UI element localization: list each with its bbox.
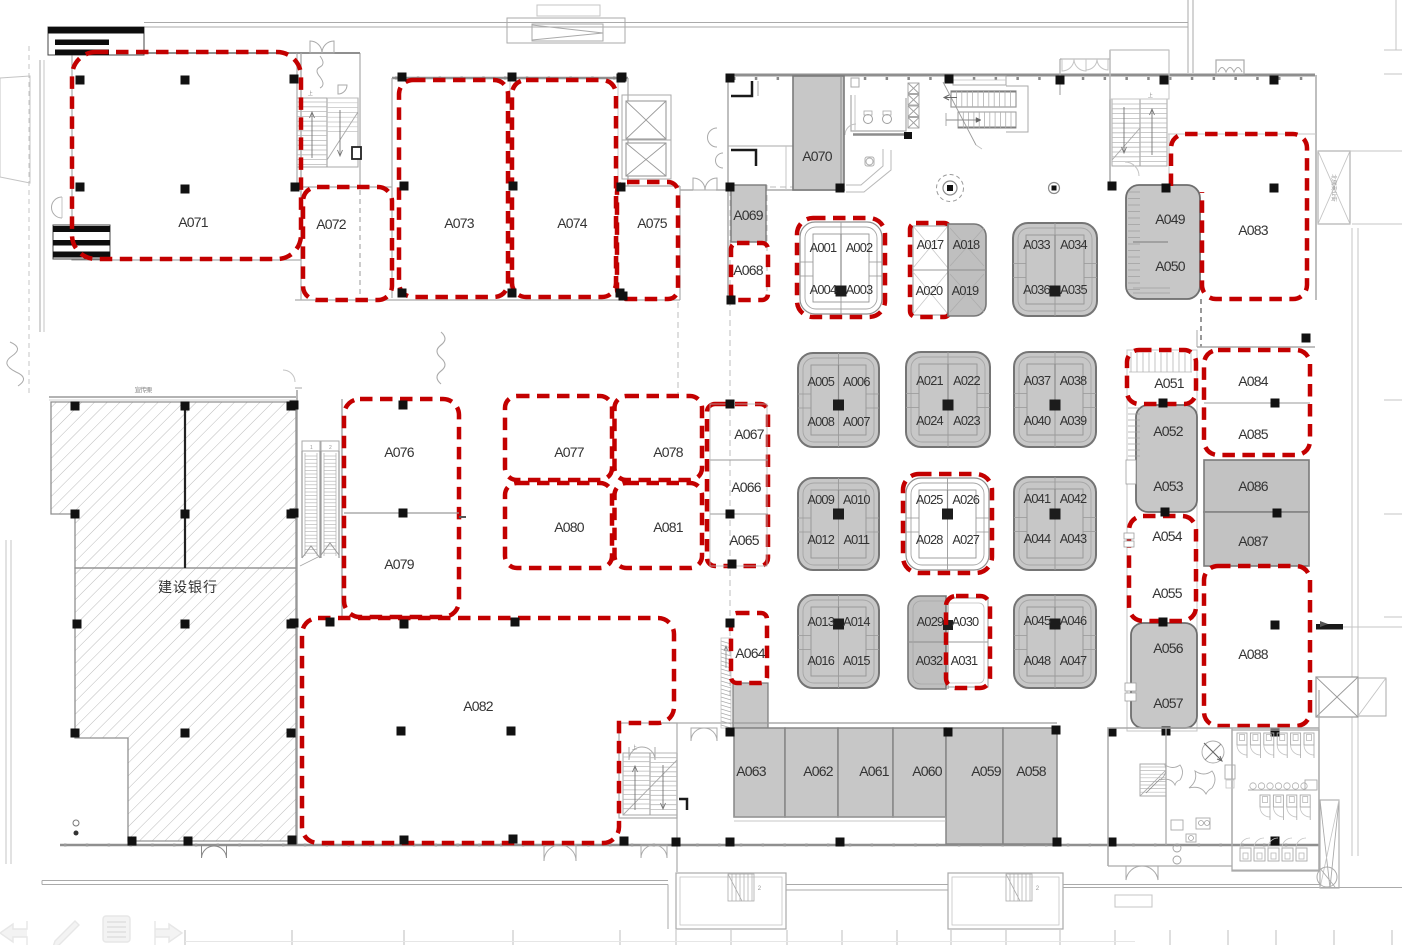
svg-text:A001: A001 <box>810 240 837 255</box>
svg-text:A035: A035 <box>1060 282 1087 297</box>
svg-text:A021: A021 <box>916 373 943 388</box>
svg-text:A027: A027 <box>952 532 979 547</box>
svg-text:A070: A070 <box>802 148 833 164</box>
svg-text:A033: A033 <box>1023 237 1050 252</box>
svg-text:A010: A010 <box>843 492 870 507</box>
svg-text:A072: A072 <box>316 216 347 232</box>
svg-text:A053: A053 <box>1153 478 1184 494</box>
svg-text:A023: A023 <box>953 413 980 428</box>
svg-text:A009: A009 <box>807 492 834 507</box>
svg-text:A020: A020 <box>916 283 943 298</box>
svg-text:A004: A004 <box>810 282 837 297</box>
svg-text:建设银行: 建设银行 <box>158 579 218 595</box>
svg-text:A060: A060 <box>912 763 943 779</box>
svg-text:A087: A087 <box>1238 533 1269 549</box>
svg-text:A046: A046 <box>1060 613 1087 628</box>
svg-text:A075: A075 <box>637 215 668 231</box>
svg-text:A081: A081 <box>653 519 684 535</box>
svg-text:A041: A041 <box>1024 491 1051 506</box>
svg-text:A030: A030 <box>952 614 979 629</box>
svg-text:北侧商业街: 北侧商业街 <box>1330 174 1338 202</box>
svg-text:A079: A079 <box>384 556 415 572</box>
svg-text:A040: A040 <box>1024 413 1051 428</box>
svg-text:A024: A024 <box>916 413 943 428</box>
svg-text:A015: A015 <box>843 653 870 668</box>
svg-text:A059: A059 <box>971 763 1002 779</box>
svg-text:A066: A066 <box>731 479 762 495</box>
svg-text:A054: A054 <box>1152 528 1183 544</box>
svg-text:A017: A017 <box>917 237 944 252</box>
svg-text:A013: A013 <box>807 614 834 629</box>
svg-text:A058: A058 <box>1016 763 1047 779</box>
svg-text:A063: A063 <box>736 763 767 779</box>
svg-text:A051: A051 <box>1154 375 1185 391</box>
svg-text:A074: A074 <box>557 215 588 231</box>
svg-text:A043: A043 <box>1060 531 1087 546</box>
svg-text:A088: A088 <box>1238 646 1269 662</box>
svg-text:A036: A036 <box>1023 282 1050 297</box>
svg-text:A048: A048 <box>1024 653 1051 668</box>
svg-text:A056: A056 <box>1153 640 1184 656</box>
svg-text:A057: A057 <box>1153 695 1184 711</box>
svg-text:A042: A042 <box>1060 491 1087 506</box>
svg-text:A034: A034 <box>1060 237 1087 252</box>
svg-text:A016: A016 <box>807 653 834 668</box>
svg-text:A037: A037 <box>1024 373 1051 388</box>
svg-text:A078: A078 <box>653 444 684 460</box>
svg-text:A062: A062 <box>803 763 834 779</box>
svg-text:A065: A065 <box>729 532 760 548</box>
svg-text:A045: A045 <box>1024 613 1051 628</box>
svg-text:A028: A028 <box>916 532 943 547</box>
svg-text:A061: A061 <box>859 763 890 779</box>
svg-text:A084: A084 <box>1238 373 1269 389</box>
svg-text:A055: A055 <box>1152 585 1183 601</box>
svg-text:A026: A026 <box>952 492 979 507</box>
svg-text:A032: A032 <box>916 653 943 668</box>
svg-text:A047: A047 <box>1060 653 1087 668</box>
svg-text:A029: A029 <box>917 614 944 629</box>
svg-text:A031: A031 <box>951 653 978 668</box>
svg-text:A049: A049 <box>1155 211 1186 227</box>
svg-text:A071: A071 <box>178 214 209 230</box>
svg-text:A025: A025 <box>916 492 943 507</box>
svg-text:A007: A007 <box>843 414 870 429</box>
svg-text:A019: A019 <box>952 283 979 298</box>
svg-text:A018: A018 <box>953 237 980 252</box>
svg-text:A068: A068 <box>733 262 764 278</box>
svg-text:A077: A077 <box>554 444 585 460</box>
svg-text:A086: A086 <box>1238 478 1269 494</box>
svg-text:A011: A011 <box>843 532 869 547</box>
svg-text:A044: A044 <box>1024 531 1051 546</box>
svg-text:A014: A014 <box>843 614 870 629</box>
svg-text:A038: A038 <box>1060 373 1087 388</box>
svg-text:A064: A064 <box>735 645 766 661</box>
svg-text:A069: A069 <box>733 207 764 223</box>
svg-text:A067: A067 <box>734 426 765 442</box>
svg-text:A022: A022 <box>953 373 980 388</box>
svg-text:A050: A050 <box>1155 258 1186 274</box>
svg-text:A073: A073 <box>444 215 475 231</box>
svg-text:A039: A039 <box>1060 413 1087 428</box>
svg-text:A006: A006 <box>843 374 870 389</box>
svg-text:A083: A083 <box>1238 222 1269 238</box>
svg-text:A012: A012 <box>807 532 834 547</box>
svg-text:A082: A082 <box>463 698 494 714</box>
svg-text:A003: A003 <box>846 282 873 297</box>
svg-text:A080: A080 <box>554 519 585 535</box>
svg-text:A002: A002 <box>846 240 873 255</box>
svg-text:A005: A005 <box>807 374 834 389</box>
svg-text:A052: A052 <box>1153 423 1184 439</box>
svg-text:宣传栗: 宣传栗 <box>134 385 152 394</box>
svg-text:A008: A008 <box>807 414 834 429</box>
svg-text:A085: A085 <box>1238 426 1269 442</box>
svg-text:A076: A076 <box>384 444 415 460</box>
